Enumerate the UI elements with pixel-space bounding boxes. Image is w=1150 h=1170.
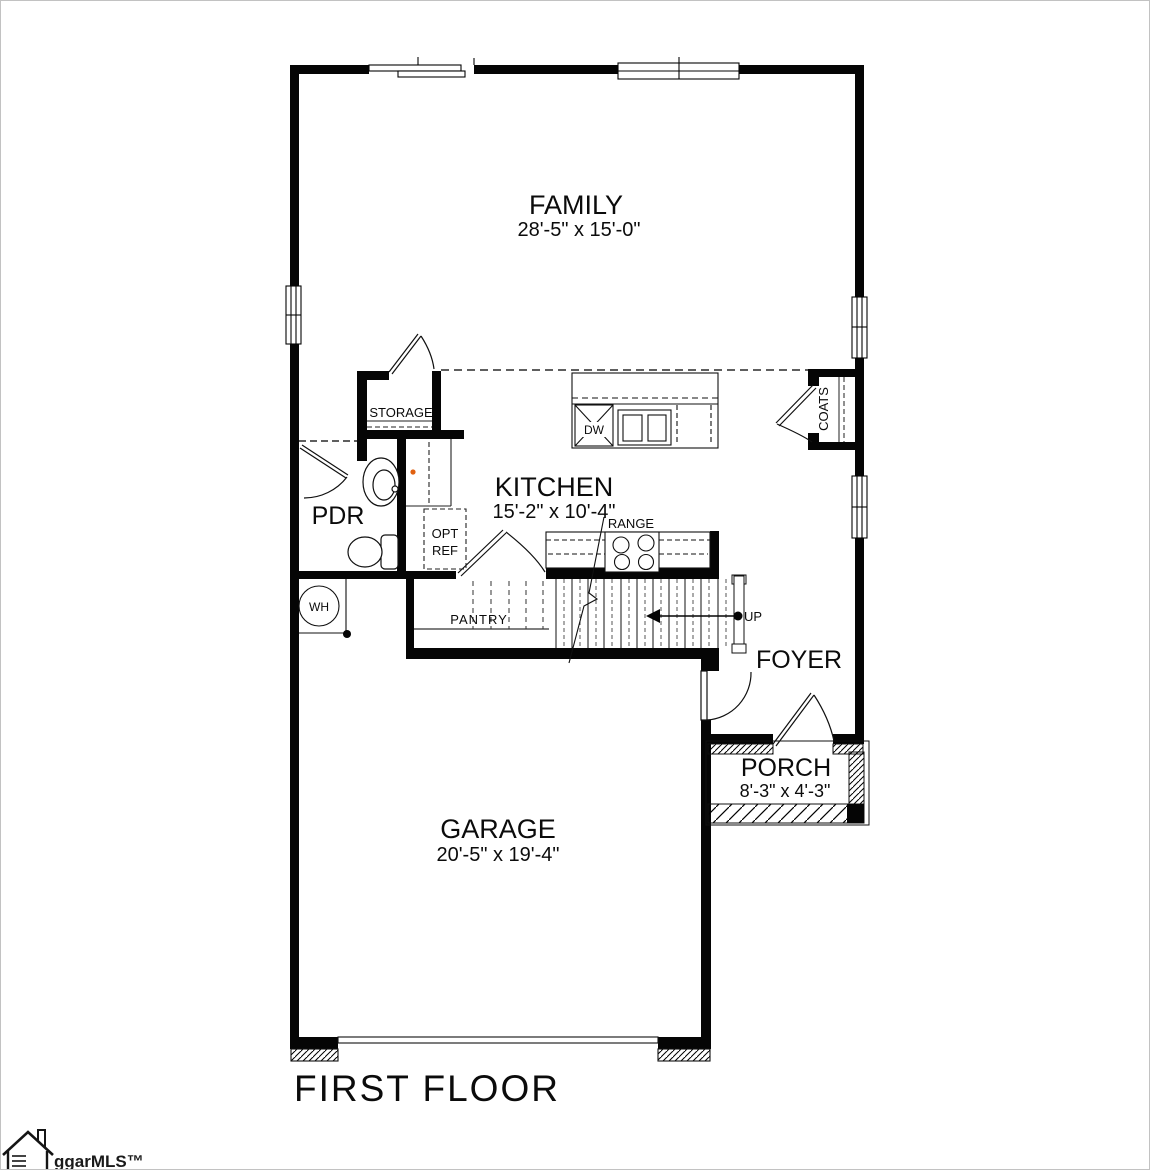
wall-pantry-left: [406, 579, 414, 659]
foyer-label: FOYER: [756, 646, 842, 674]
porch-corner-post: [847, 804, 864, 823]
wall-right-lower: [855, 538, 864, 741]
wall-counter-stub: [710, 531, 719, 579]
range-label: RANGE: [608, 516, 655, 531]
wall-storage-left: [357, 371, 367, 461]
wall-storage-bottom: [357, 430, 464, 439]
garage-dims: 20'-5" x 19'-4": [436, 844, 559, 866]
pdr-door: [300, 445, 348, 498]
floor-plan-image: FAMILY 28'-5" x 15'-0" KITCHEN 15'-2" x …: [0, 0, 1150, 1170]
accent-dot: [410, 469, 415, 474]
wall-left-lower: [290, 344, 299, 1049]
wall-right-upper: [855, 65, 864, 297]
wall-foyer-bottom-right: [833, 734, 864, 744]
house-icon: [3, 1130, 53, 1170]
wall-storage-right: [432, 371, 441, 439]
page-title: FIRST FLOOR: [294, 1068, 560, 1109]
wall-left-upper: [290, 65, 299, 286]
range-counter: [546, 532, 710, 572]
family-room-dims: 28'-5" x 15'-0": [517, 219, 640, 241]
window-right-lower: [852, 476, 867, 538]
wall-foyer-bottom-left: [701, 734, 773, 744]
up-arrow: [646, 609, 743, 623]
stoop-hatch-left: [291, 1049, 338, 1061]
double-window-top: [618, 57, 739, 79]
up-label: UP: [744, 609, 762, 624]
pdr-sink: [363, 458, 399, 506]
wall-coats-stub-bottom: [808, 433, 819, 450]
porch-label: PORCH: [741, 754, 831, 782]
wall-top-left: [290, 65, 369, 74]
toilet: [348, 535, 398, 569]
coats-shelf: [839, 377, 844, 442]
front-door: [773, 693, 834, 746]
wall-garage-bottom-left: [290, 1037, 338, 1049]
wall-coats-stub-top: [808, 369, 819, 386]
watermark-text: ggarMLS™: [54, 1152, 144, 1170]
wall-pdr-bottom: [290, 571, 406, 579]
pantry-label: PANTRY: [450, 612, 508, 627]
wall-foyer-corner: [701, 648, 719, 671]
family-room-label: FAMILY: [529, 190, 623, 220]
wall-top-right: [739, 65, 864, 74]
porch-dims: 8'-3" x 4'-3": [740, 781, 831, 801]
watermark: ggarMLS™: [3, 1130, 144, 1170]
window-left: [286, 286, 301, 344]
garage-entry-door: [701, 671, 751, 720]
room-labels: FAMILY 28'-5" x 15'-0" KITCHEN 15'-2" x …: [309, 190, 842, 866]
pdr-label: PDR: [312, 502, 365, 530]
storage-door: [389, 334, 434, 374]
kitchen-label: KITCHEN: [495, 472, 614, 502]
wall-garage-bottom-right: [658, 1037, 711, 1049]
storage-shelf: [367, 421, 432, 427]
sliding-door-top: [369, 57, 474, 77]
porch-wall-hatch-left: [708, 744, 773, 754]
dishwasher-label: DW: [584, 423, 605, 437]
opt-ref-label-1: OPT: [432, 526, 459, 541]
kitchen-dims: 15'-2" x 10'-4": [492, 501, 615, 523]
range: [605, 532, 659, 572]
garage-door: [338, 1037, 658, 1043]
floor-plan-drawing: FAMILY 28'-5" x 15'-0" KITCHEN 15'-2" x …: [1, 1, 1150, 1170]
kitchen-door: [458, 530, 545, 576]
porch-step-hatch: [708, 804, 864, 823]
opt-ref-label-2: REF: [432, 543, 458, 558]
wall-top-mid: [474, 65, 618, 74]
storage-label: STORAGE: [369, 405, 433, 420]
wall-kitchen-door-jamb: [406, 571, 456, 579]
stoop-hatch-right: [658, 1049, 710, 1061]
water-heater-label: WH: [309, 600, 329, 614]
garage-label: GARAGE: [440, 814, 556, 844]
porch-wall-hatch-side: [849, 752, 864, 806]
coats-label: COATS: [816, 387, 831, 431]
window-right-upper: [852, 297, 867, 358]
garage-door-area: [291, 1037, 710, 1061]
wall-stairs-bottom: [406, 648, 708, 659]
